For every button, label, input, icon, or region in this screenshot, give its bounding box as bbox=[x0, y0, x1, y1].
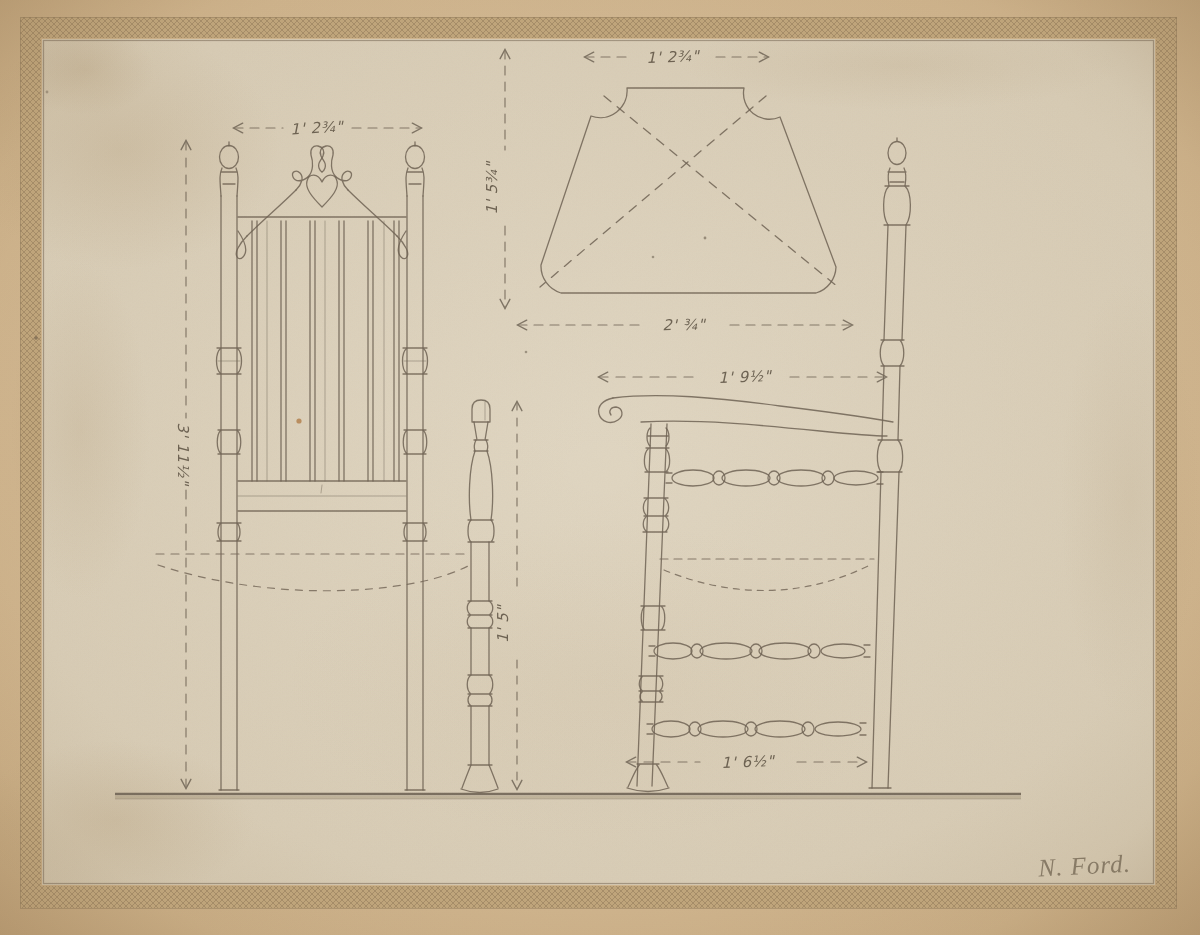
measured-drawing-scan: 1' 2¾" 1' 5¾" 2' ¾" bbox=[0, 0, 1200, 935]
vignette bbox=[0, 0, 1200, 935]
drawing-sheet: 1' 2¾" 1' 5¾" 2' ¾" bbox=[0, 0, 1200, 935]
